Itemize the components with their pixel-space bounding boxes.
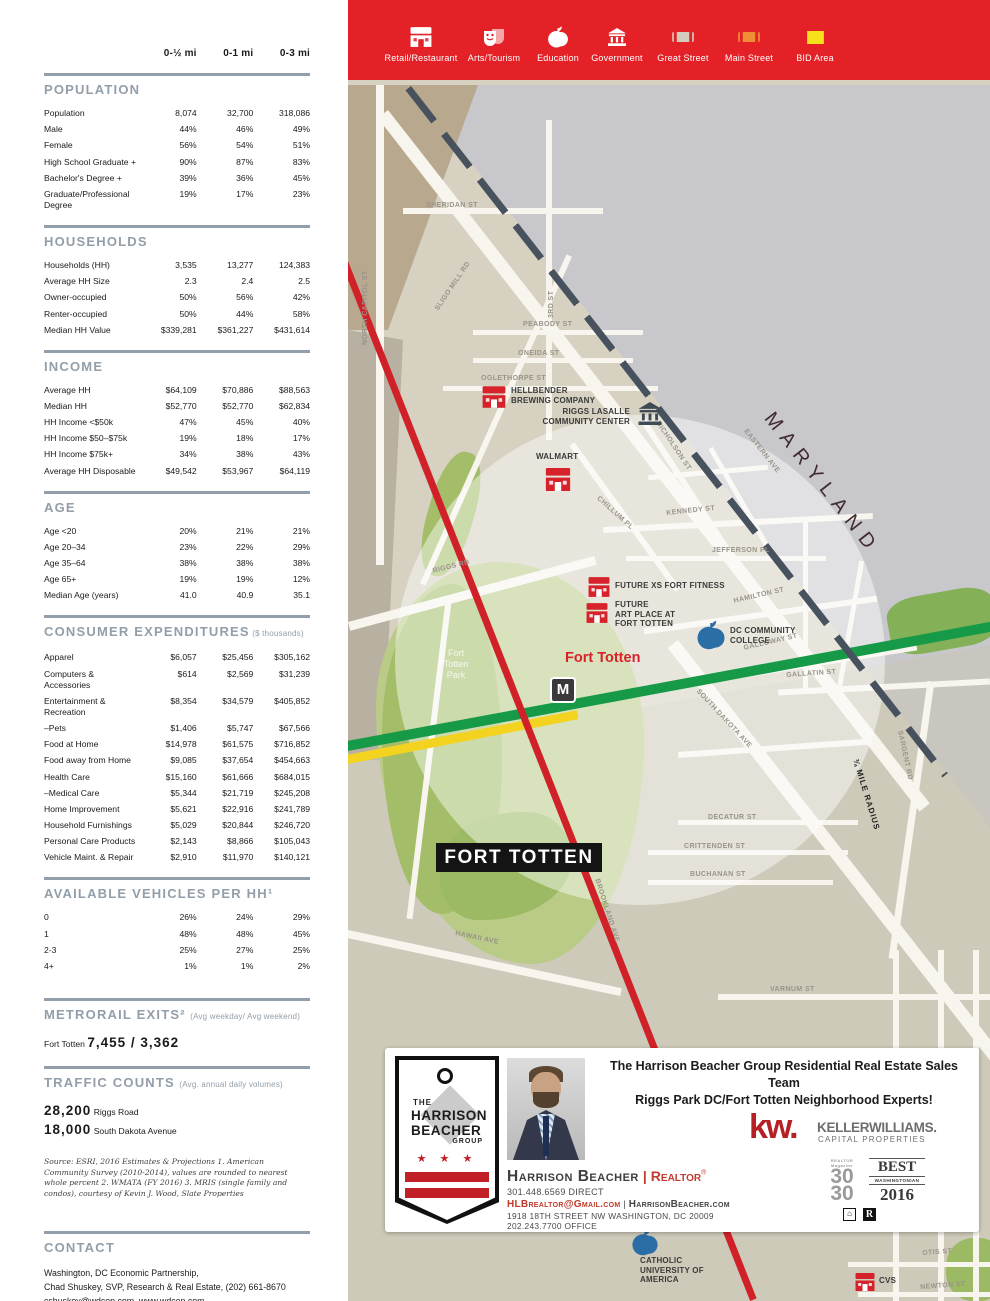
stats-row: Average HH$64,109$70,886$88,563 (44, 385, 310, 396)
stat-value: $2,910 (140, 852, 197, 863)
stats-row: Age 35–6438%38%38% (44, 558, 310, 569)
stat-label: Food at Home (44, 739, 140, 750)
stats-row: Food at Home$14,978$61,575$716,852 (44, 739, 310, 750)
stat-value: 25% (253, 945, 310, 956)
retail-icon (545, 468, 571, 496)
section-note: ($ thousands) (250, 629, 304, 638)
logo-beacher: BEACHER (411, 1123, 481, 1138)
stats-row: –Medical Care$5,344$21,719$245,208 (44, 788, 310, 799)
stat-value: $614 (140, 669, 197, 680)
col-header-half-mile: 0-½ mi (140, 48, 197, 59)
station-label: Fort Totten (565, 650, 640, 666)
stat-value: 38% (197, 558, 254, 569)
map-legend-bar: Retail/RestaurantArts/TourismEducationGo… (348, 0, 990, 80)
column-header-spacer (44, 48, 140, 59)
stat-value: $53,967 (197, 466, 254, 477)
stat-value: $88,563 (253, 385, 310, 396)
stat-value: 21% (253, 526, 310, 537)
stat-value: $34,579 (197, 696, 254, 707)
stats-row: Apparel$6,057$25,456$305,162 (44, 652, 310, 663)
stat-value: 56% (197, 292, 254, 303)
stat-value: 51% (253, 140, 310, 151)
metrorail-note: (Avg weekday/ Avg weekend) (190, 1012, 300, 1021)
stat-value: $8,866 (197, 836, 254, 847)
bid-area-icon (767, 24, 863, 50)
stat-value: $105,043 (253, 836, 310, 847)
street-label: VARNUM ST (770, 986, 815, 993)
harrison-beacher-group-logo: THE HARRISON BEACHER GROUP ★ ★ ★ (395, 1056, 499, 1224)
stats-row: HH Income $50–$75k19%18%17% (44, 433, 310, 444)
poi-label: RIGGS LASALLE COMMUNITY CENTER (494, 407, 630, 426)
stat-value: 50% (140, 292, 197, 303)
retail-icon (588, 577, 610, 602)
road (848, 1262, 990, 1267)
stat-value: 34% (140, 449, 197, 460)
street-label: PEABODY ST (523, 321, 572, 328)
agent-address: 1918 18TH STREET NW WASHINGTON, DC 20009 (507, 1211, 714, 1221)
realtor-card: THE HARRISON BEACHER GROUP ★ ★ ★ Harriso… (385, 1048, 979, 1232)
stat-value: 90% (140, 157, 197, 168)
stat-label: Households (HH) (44, 260, 140, 271)
stats-row: Age <2020%21%21% (44, 526, 310, 537)
stat-value: $64,119 (253, 466, 310, 477)
logo-group: GROUP (452, 1138, 483, 1145)
traffic-count-sdakota: 18,000 (44, 1122, 91, 1137)
stat-value: $246,720 (253, 820, 310, 831)
street-label: ONEIDA ST (518, 350, 559, 357)
stat-value: $61,575 (197, 739, 254, 750)
stat-value: $52,770 (140, 401, 197, 412)
stats-row: Food away from Home$9,085$37,654$454,663 (44, 755, 310, 766)
stat-value: $8,354 (140, 696, 197, 707)
road (376, 85, 384, 565)
stat-value: 1% (140, 961, 197, 972)
stat-value: $49,542 (140, 466, 197, 477)
agent-phone-direct: 301.448.6569 DIRECT (507, 1187, 604, 1197)
stats-row: Personal Care Products$2,143$8,866$105,0… (44, 836, 310, 847)
best-washingtonian-badge: BEST WASHINGTONIAN 2016 (869, 1158, 925, 1205)
stats-row: Households (HH)3,53513,277124,383 (44, 260, 310, 271)
stat-value: $20,844 (197, 820, 254, 831)
metro-station-icon: M (552, 679, 574, 701)
keller-williams-kw-logo: kw. (749, 1108, 797, 1147)
road (718, 994, 990, 1000)
stats-section: AGEAge <2020%21%21%Age 20–3423%22%29%Age… (44, 491, 310, 602)
poi-label: CATHOLIC UNIVERSITY OF AMERICA (640, 1256, 750, 1285)
stat-value: 43% (253, 449, 310, 460)
stat-value: $14,978 (140, 739, 197, 750)
stat-label: Age 65+ (44, 574, 140, 585)
stat-value: $5,029 (140, 820, 197, 831)
section-title: CONSUMER EXPENDITURES (44, 624, 250, 639)
stat-label: HH Income $50–$75k (44, 433, 140, 444)
stat-value: 21% (197, 526, 254, 537)
stat-value: $67,566 (253, 723, 310, 734)
section-title: AVAILABLE VEHICLES PER HH¹ (44, 886, 273, 901)
stat-value: 45% (253, 929, 310, 940)
stat-value: 13,277 (197, 260, 254, 271)
street-label: OGLETHORPE ST (481, 375, 546, 382)
stat-label: Median HH (44, 401, 140, 412)
stat-value: 35.1 (253, 590, 310, 601)
section-title: HOUSEHOLDS (44, 234, 148, 249)
stat-value: 27% (197, 945, 254, 956)
poi-label: DC COMMUNITY COLLEGE (730, 626, 840, 645)
stats-row: Home Improvement$5,621$22,916$241,789 (44, 804, 310, 815)
agent-phone-office: 202.243.7700 OFFICE (507, 1221, 597, 1231)
agent-email[interactable]: HLBrealtor@Gmail.com (507, 1199, 620, 1210)
stat-label: Vehicle Maint. & Repair (44, 852, 140, 863)
divider: | (639, 1168, 651, 1184)
stat-label: Personal Care Products (44, 836, 140, 847)
park-label: Fort Totten Park (426, 648, 486, 681)
stat-value: 17% (197, 189, 254, 200)
stat-label: Computers & Accessories (44, 669, 140, 691)
stats-sections: POPULATIONPopulation8,07432,700318,086Ma… (44, 73, 310, 972)
traffic-note: (Avg. annual daily volumes) (179, 1080, 283, 1089)
stat-value: 41.0 (140, 590, 197, 601)
stat-value: 50% (140, 309, 197, 320)
metrorail-station: Fort Totten (44, 1039, 85, 1049)
stats-sidebar: 0-½ mi 0-1 mi 0-3 mi POPULATIONPopulatio… (0, 0, 348, 1301)
metrorail-section: METRORAIL EXITS² (Avg weekday/ Avg weeke… (44, 998, 310, 1050)
street-label: CRITTENDEN ST (684, 843, 745, 850)
logo-stripe (405, 1188, 489, 1198)
street-label: NORTH CAPITOL ST (362, 270, 369, 345)
stat-value: 8,074 (140, 108, 197, 119)
stats-row: 4+1%1%2% (44, 961, 310, 972)
source-note: Source: ESRI, 2016 Estimates & Projectio… (44, 1157, 294, 1199)
agent-title: Realtor (651, 1168, 701, 1184)
contact-person: Chad Shuskey, SVP, Research & Real Estat… (44, 1280, 310, 1294)
stat-value: $15,160 (140, 772, 197, 783)
stats-row: Age 20–3423%22%29% (44, 542, 310, 553)
traffic-title: TRAFFIC COUNTS (44, 1075, 175, 1090)
stat-value: 83% (253, 157, 310, 168)
stat-value: 47% (140, 417, 197, 428)
stat-value: 29% (253, 912, 310, 923)
col-header-one-mile: 0-1 mi (197, 48, 254, 59)
stat-label: Entertainment & Recreation (44, 696, 140, 718)
traffic-road-sdakota: South Dakota Avenue (94, 1126, 177, 1136)
stat-label: Renter-occupied (44, 309, 140, 320)
stat-value: 40.9 (197, 590, 254, 601)
contact-org: Washington, DC Economic Partnership, (44, 1266, 310, 1280)
logo-harrison: HARRISON (411, 1108, 487, 1123)
registered-mark: ® (701, 1170, 706, 1177)
stats-row: Owner-occupied50%56%42% (44, 292, 310, 303)
stat-value: 2.3 (140, 276, 197, 287)
stats-section: HOUSEHOLDSHouseholds (HH)3,53513,277124,… (44, 225, 310, 336)
stat-label: Age 20–34 (44, 542, 140, 553)
keller-williams-division: CAPITAL PROPERTIES (818, 1135, 926, 1144)
stats-row: –Pets$1,406$5,747$67,566 (44, 723, 310, 734)
stat-label: 1 (44, 929, 140, 940)
stat-value: 45% (253, 173, 310, 184)
stat-value: 20% (140, 526, 197, 537)
stat-value: 3,535 (140, 260, 197, 271)
stat-value: 46% (197, 124, 254, 135)
stat-value: $37,654 (197, 755, 254, 766)
poi-label: HELLBENDER BREWING COMPANY (511, 386, 641, 405)
stats-row: Household Furnishings$5,029$20,844$246,7… (44, 820, 310, 831)
section-title: INCOME (44, 359, 103, 374)
stat-value: $11,970 (197, 852, 254, 863)
stats-section: CONSUMER EXPENDITURES ($ thousands)Appar… (44, 615, 310, 863)
stat-value: 26% (140, 912, 197, 923)
stat-value: 56% (140, 140, 197, 151)
logo-stars-icon: ★ ★ ★ (399, 1152, 495, 1165)
stats-row: Female56%54%51% (44, 140, 310, 151)
stat-label: Female (44, 140, 140, 151)
stats-row: Population8,07432,700318,086 (44, 108, 310, 119)
stats-row: Bachelor's Degree +39%36%45% (44, 173, 310, 184)
headline-line2: Riggs Park DC/Fort Totten Neighborhood E… (597, 1092, 971, 1109)
stat-label: HH Income <$50k (44, 417, 140, 428)
stat-value: $5,747 (197, 723, 254, 734)
stat-value: $361,227 (197, 325, 254, 336)
separator: | (620, 1199, 628, 1209)
stats-row: Vehicle Maint. & Repair$2,910$11,970$140… (44, 852, 310, 863)
poi-label: WALMART (536, 452, 626, 462)
education-icon (696, 620, 726, 655)
stat-value: 12% (253, 574, 310, 585)
stat-value: $52,770 (197, 401, 254, 412)
stat-value: $684,015 (253, 772, 310, 783)
stat-value: 44% (140, 124, 197, 135)
fort-totten-area-label: FORT TOTTEN (436, 843, 602, 872)
stat-label: Average HH (44, 385, 140, 396)
stats-row: High School Graduate +90%87%83% (44, 157, 310, 168)
stat-value: 24% (197, 912, 254, 923)
stat-label: –Medical Care (44, 788, 140, 799)
stat-value: $6,057 (140, 652, 197, 663)
government-icon (636, 402, 664, 430)
stat-value: $2,143 (140, 836, 197, 847)
realtor-logo-icon: R (863, 1208, 876, 1221)
stat-label: Age <20 (44, 526, 140, 537)
stats-row: Computers & Accessories$614$2,569$31,239 (44, 669, 310, 691)
stat-value: $241,789 (253, 804, 310, 815)
street-label: SHERIDAN ST (426, 202, 478, 209)
street-label: 3RD ST (548, 291, 555, 318)
stats-row: Median HH Value$339,281$361,227$431,614 (44, 325, 310, 336)
stat-label: High School Graduate + (44, 157, 140, 168)
stats-section: POPULATIONPopulation8,07432,700318,086Ma… (44, 73, 310, 211)
stat-value: $716,852 (253, 739, 310, 750)
stat-value: 124,383 (253, 260, 310, 271)
stat-value: 39% (140, 173, 197, 184)
stat-value: 45% (197, 417, 254, 428)
stat-value: $5,344 (140, 788, 197, 799)
stat-value: $454,663 (253, 755, 310, 766)
stat-label: Household Furnishings (44, 820, 140, 831)
stat-label: Bachelor's Degree + (44, 173, 140, 184)
stat-label: 0 (44, 912, 140, 923)
stat-value: 38% (140, 558, 197, 569)
stat-label: Median Age (years) (44, 590, 140, 601)
stats-section: AVAILABLE VEHICLES PER HH¹026%24%29%148%… (44, 877, 310, 972)
poi-label: FUTURE XS FORT FITNESS (615, 581, 785, 591)
stat-label: Owner-occupied (44, 292, 140, 303)
stat-value: 49% (253, 124, 310, 135)
stats-row: Entertainment & Recreation$8,354$34,579$… (44, 696, 310, 718)
stat-value: 2% (253, 961, 310, 972)
stat-label: Average HH Size (44, 276, 140, 287)
stat-value: $62,834 (253, 401, 310, 412)
stats-row: Median HH$52,770$52,770$62,834 (44, 401, 310, 412)
street-label: BUCHANAN ST (690, 871, 746, 878)
stat-label: Average HH Disposable (44, 466, 140, 477)
stat-label: Food away from Home (44, 755, 140, 766)
road (473, 358, 633, 363)
headline-line1: The Harrison Beacher Group Residential R… (597, 1058, 971, 1092)
map: MARYLAND ¾ MILE RADIUS Fort Totten Park … (348, 0, 990, 1301)
keller-williams-name: KELLERWILLIAMS. (817, 1120, 937, 1135)
stat-label: Median HH Value (44, 325, 140, 336)
legend-item-bid-area: BID Area (767, 24, 863, 63)
thirty-under-thirty-badge: REALTOR Magazine 30 30 (821, 1158, 863, 1206)
stat-label: Health Care (44, 772, 140, 783)
stats-row: 148%48%45% (44, 929, 310, 940)
stat-label: Population (44, 108, 140, 119)
logo-ring-icon (437, 1068, 453, 1084)
retail-icon (855, 1273, 875, 1296)
logo-the: THE (413, 1098, 432, 1107)
equal-housing-icon: ⌂ (843, 1208, 856, 1221)
col-header-three-mile: 0-3 mi (253, 48, 310, 59)
stat-value: 48% (197, 929, 254, 940)
stat-value: 42% (253, 292, 310, 303)
stat-value: 54% (197, 140, 254, 151)
stat-value: 18% (197, 433, 254, 444)
stat-value: 2.5 (253, 276, 310, 287)
section-title: AGE (44, 500, 76, 515)
card-headline: The Harrison Beacher Group Residential R… (597, 1058, 971, 1109)
stats-row: Average HH Disposable$49,542$53,967$64,1… (44, 466, 310, 477)
stats-section: INCOMEAverage HH$64,109$70,886$88,563Med… (44, 350, 310, 477)
agent-contact-line: HLBrealtor@Gmail.com | HarrisonBeacher.c… (507, 1199, 730, 1210)
agent-name: Harrison Beacher (507, 1168, 639, 1185)
stat-label: Male (44, 124, 140, 135)
stats-row: Median Age (years)41.040.935.1 (44, 590, 310, 601)
stat-value: 2.4 (197, 276, 254, 287)
stat-value: 23% (253, 189, 310, 200)
column-headers: 0-½ mi 0-1 mi 0-3 mi (44, 48, 310, 59)
contact-section: CONTACT Washington, DC Economic Partners… (44, 1231, 310, 1301)
stat-value: 38% (197, 449, 254, 460)
stats-row: HH Income $75k+34%38%43% (44, 449, 310, 460)
stat-label: Graduate/Professional Degree (44, 189, 140, 211)
stat-label: 2-3 (44, 945, 140, 956)
stat-label: –Pets (44, 723, 140, 734)
stat-value: 22% (197, 542, 254, 553)
street-label: JEFFERSON PL (712, 547, 770, 554)
stats-row: Age 65+19%19%12% (44, 574, 310, 585)
stat-value: $64,109 (140, 385, 197, 396)
stat-value: $21,719 (197, 788, 254, 799)
stat-value: 32,700 (197, 108, 254, 119)
street-label: DECATUR ST (708, 814, 757, 821)
stat-value: 58% (253, 309, 310, 320)
traffic-road-riggs: Riggs Road (94, 1107, 139, 1117)
stat-value: 40% (253, 417, 310, 428)
stat-value: 19% (197, 574, 254, 585)
poi-label: CVS (879, 1276, 929, 1286)
road (473, 330, 643, 335)
stat-value: $1,406 (140, 723, 197, 734)
stats-row: 026%24%29% (44, 912, 310, 923)
stat-value: $25,456 (197, 652, 254, 663)
stat-value: 87% (197, 157, 254, 168)
stats-row: Graduate/Professional Degree19%17%23% (44, 189, 310, 211)
stat-value: 19% (140, 433, 197, 444)
traffic-count-riggs: 28,200 (44, 1103, 91, 1118)
road (858, 1292, 990, 1297)
stat-value: $61,666 (197, 772, 254, 783)
stat-value: $339,281 (140, 325, 197, 336)
stats-row: Health Care$15,160$61,666$684,015 (44, 772, 310, 783)
stat-value: $9,085 (140, 755, 197, 766)
stat-value: $5,621 (140, 804, 197, 815)
metrorail-value: 7,455 / 3,362 (87, 1035, 179, 1050)
stats-row: 2-325%27%25% (44, 945, 310, 956)
stat-value: 29% (253, 542, 310, 553)
traffic-section: TRAFFIC COUNTS (Avg. annual daily volume… (44, 1066, 310, 1137)
stat-value: 19% (140, 189, 197, 200)
retail-icon (586, 603, 608, 628)
stat-value: 48% (140, 929, 197, 940)
stat-value: 318,086 (253, 108, 310, 119)
stat-value: $31,239 (253, 669, 310, 680)
street-label: SLIGO MILL RD (434, 261, 472, 312)
logo-stripe (405, 1172, 489, 1182)
contact-title: CONTACT (44, 1240, 115, 1255)
stats-row: Renter-occupied50%44%58% (44, 309, 310, 320)
stat-label: HH Income $75k+ (44, 449, 140, 460)
stat-value: $22,916 (197, 804, 254, 815)
contact-email-web: cshuskey@wdcep.com, www.wdcep.com (44, 1294, 310, 1301)
stats-row: Male44%46%49% (44, 124, 310, 135)
agent-name-line: Harrison Beacher|Realtor® (507, 1168, 706, 1186)
stat-label: Home Improvement (44, 804, 140, 815)
stat-label: Apparel (44, 652, 140, 663)
stat-value: $431,614 (253, 325, 310, 336)
stat-value: 23% (140, 542, 197, 553)
stat-value: 44% (197, 309, 254, 320)
stat-value: 38% (253, 558, 310, 569)
section-title: POPULATION (44, 82, 140, 97)
stat-value: 1% (197, 961, 254, 972)
stats-row: Average HH Size2.32.42.5 (44, 276, 310, 287)
stats-row: HH Income <$50k47%45%40% (44, 417, 310, 428)
stat-label: 4+ (44, 961, 140, 972)
stat-value: $305,162 (253, 652, 310, 663)
stat-value: 19% (140, 574, 197, 585)
stat-value: $70,886 (197, 385, 254, 396)
stat-value: $2,569 (197, 669, 254, 680)
legend-label: BID Area (767, 53, 863, 63)
flyer-page: 0-½ mi 0-1 mi 0-3 mi POPULATIONPopulatio… (0, 0, 990, 1301)
metrorail-title: METRORAIL EXITS² (44, 1007, 186, 1022)
agent-photo (507, 1058, 585, 1160)
stat-value: 25% (140, 945, 197, 956)
stat-value: 17% (253, 433, 310, 444)
agent-website[interactable]: HarrisonBeacher.com (629, 1199, 730, 1210)
stat-value: $140,121 (253, 852, 310, 863)
stat-value: $245,208 (253, 788, 310, 799)
stat-label: Age 35–64 (44, 558, 140, 569)
